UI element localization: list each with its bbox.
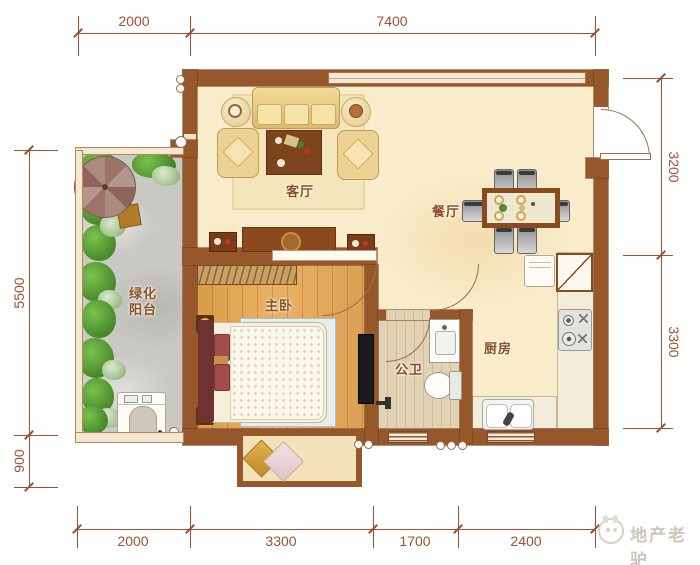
window-top — [328, 72, 586, 84]
dim-left-1: 5500 — [11, 263, 27, 323]
window-kitchen — [487, 431, 535, 443]
drain-icon — [436, 441, 445, 450]
dim-ext — [623, 78, 673, 79]
pipe-icon — [176, 75, 185, 84]
living-room-label: 客厅 — [270, 184, 330, 199]
pipe-icon — [175, 136, 187, 148]
dim-line-top — [78, 33, 595, 34]
dim-bottom-1: 2000 — [103, 533, 163, 549]
drain-icon — [364, 440, 373, 449]
dim-right-1: 3200 — [666, 137, 682, 197]
dish-green — [499, 204, 507, 212]
drain-icon — [447, 441, 456, 450]
bathroom-label: 公卫 — [379, 362, 439, 377]
balcony-rail-left — [75, 150, 83, 440]
bed-headboard — [198, 320, 214, 423]
dim-ext — [595, 16, 596, 56]
flower-green — [297, 141, 304, 148]
dish-dark — [531, 202, 535, 206]
burner-cross-icon — [578, 334, 587, 343]
dining-room-label: 餐厅 — [416, 204, 476, 219]
dim-bottom-2: 3300 — [251, 533, 311, 549]
balcony-rail-bottom — [75, 432, 184, 443]
plant-icon — [152, 166, 180, 186]
entry-wall-pier — [586, 158, 608, 178]
plant-icon — [82, 300, 116, 338]
dim-line-bottom — [77, 529, 595, 530]
kitchen-cabinet-icon — [524, 255, 555, 287]
plate-white — [277, 159, 285, 167]
window-glass-line — [329, 78, 585, 79]
speaker-dot — [214, 238, 221, 245]
washer-button — [124, 395, 138, 403]
sink-basin — [435, 331, 456, 355]
sofa-cushion — [311, 104, 336, 125]
pipe-icon — [176, 84, 185, 93]
dim-bottom-3: 1700 — [385, 533, 445, 549]
dining-table-icon — [482, 188, 560, 228]
plant-icon — [102, 360, 126, 380]
dim-left-2: 900 — [11, 431, 27, 491]
side-table-plate — [228, 104, 242, 118]
armchair-cushion — [222, 136, 253, 167]
logo-eye — [606, 528, 610, 532]
kitchen-sink-icon — [482, 399, 534, 430]
tv-cabinet-icon — [242, 227, 336, 252]
tv-cabinet-decor — [281, 232, 301, 252]
bedroom-tv-icon — [358, 334, 374, 404]
logo-ear — [603, 515, 608, 523]
sofa-icon — [252, 87, 340, 129]
side-table-vase — [349, 104, 363, 118]
logo-eye — [613, 528, 617, 532]
watermark-logo-icon — [598, 518, 624, 544]
dining-chair-icon — [494, 226, 514, 254]
dim-ext — [190, 16, 191, 56]
kitchen-label: 厨房 — [468, 341, 528, 356]
watermark-text: 地产老驴 — [630, 521, 700, 565]
bedroom-door-panel — [272, 250, 377, 261]
window-bathroom — [388, 431, 428, 443]
dim-bottom-4: 2400 — [496, 533, 556, 549]
entry-door-panel — [600, 153, 651, 160]
plate-icon — [516, 211, 526, 221]
armchair-icon — [337, 130, 379, 180]
bed-pillow-icon — [214, 364, 230, 391]
speaker-icon — [209, 232, 237, 252]
bed-blanket — [230, 326, 324, 420]
dim-ext — [78, 16, 79, 56]
dim-right-2: 3300 — [666, 312, 682, 372]
sofa-cushion — [284, 104, 309, 125]
bed-runner — [214, 356, 228, 364]
armchair-icon — [217, 128, 259, 178]
cooktop-icon — [558, 309, 592, 351]
flower-red — [304, 148, 310, 154]
dim-ext — [14, 150, 58, 151]
drain-icon — [354, 440, 363, 449]
sofa-cushion — [257, 104, 282, 125]
speaker-dot-red — [225, 239, 230, 244]
balcony-rail-top — [75, 147, 184, 155]
bedroom-label: 主卧 — [249, 298, 309, 313]
balcony-label-line2: 阳台 — [113, 302, 173, 317]
burner-icon — [563, 315, 574, 326]
floor-plan: 客厅 餐厅 主卧 公卫 厨房 绿化 阳台 2000 7400 2000 3300… — [0, 0, 700, 565]
dim-line-left — [29, 150, 30, 487]
plate-white — [275, 137, 282, 144]
dish-gold — [519, 205, 525, 211]
plate-icon — [494, 211, 504, 221]
door-stop-hardware — [385, 397, 391, 409]
dim-top-1: 2000 — [104, 13, 164, 29]
dim-ext — [623, 255, 673, 256]
washer-button — [142, 395, 152, 403]
balcony-label-line1: 绿化 — [113, 286, 173, 301]
dining-chair-icon — [517, 226, 537, 254]
cabinet-line — [529, 262, 551, 263]
umbrella-center — [102, 184, 108, 190]
dim-ext — [623, 428, 673, 429]
burner-cross-icon — [579, 314, 588, 323]
cabinet-line — [529, 267, 551, 268]
entry-door-arc — [601, 109, 650, 158]
coffee-table-icon — [266, 130, 322, 175]
vanity-sink-icon — [429, 319, 460, 363]
toilet-tank — [449, 371, 462, 400]
dim-top-2: 7400 — [362, 13, 422, 29]
speaker-dot-red — [363, 241, 368, 246]
speaker-dot — [352, 240, 359, 247]
burner-icon — [562, 332, 576, 346]
washer-door — [129, 406, 157, 434]
faucet-dot — [442, 325, 447, 330]
armchair-cushion — [342, 138, 373, 169]
plate-icon — [516, 195, 526, 205]
logo-ear — [613, 515, 618, 523]
drain-icon — [458, 441, 467, 450]
wardrobe-icon — [197, 265, 297, 285]
fridge-icon — [556, 253, 593, 292]
